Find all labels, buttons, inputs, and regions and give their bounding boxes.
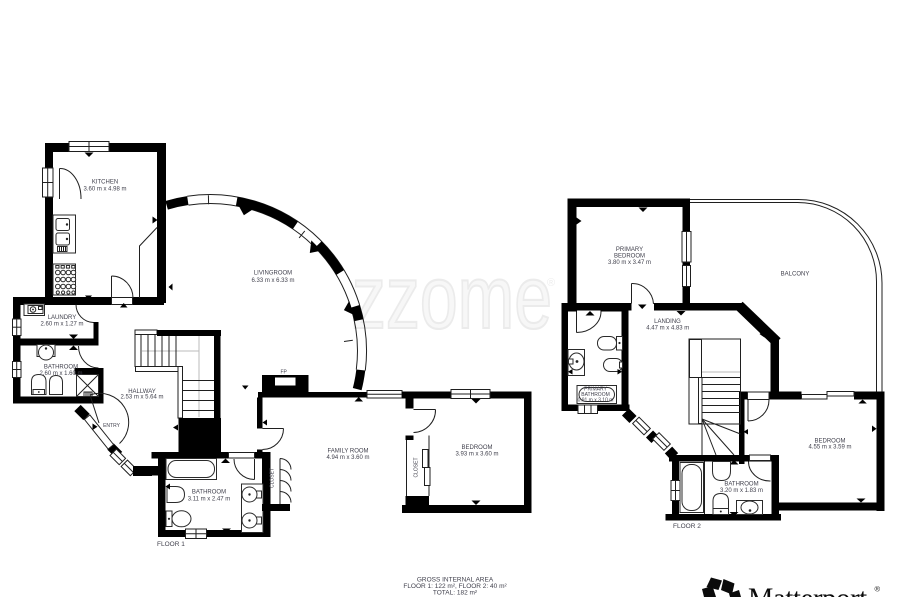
svg-text:4.94 m x 3.60 m: 4.94 m x 3.60 m — [326, 455, 369, 461]
svg-text:6.33 m x 6.33 m: 6.33 m x 6.33 m — [251, 278, 294, 284]
svg-text:2.60 m x 1.60 m: 2.60 m x 1.60 m — [39, 371, 82, 377]
svg-text:LANDING: LANDING — [654, 319, 681, 325]
svg-text:BEDROOM: BEDROOM — [614, 254, 645, 260]
svg-text:4.55 m x 3.59 m: 4.55 m x 3.59 m — [808, 445, 851, 451]
svg-text:FP: FP — [281, 370, 288, 376]
svg-text:2.60 m x 1.27 m: 2.60 m x 1.27 m — [40, 322, 83, 328]
svg-text:PRIMARY: PRIMARY — [616, 247, 643, 253]
svg-text:0.91 m x 3.10 m: 0.91 m x 3.10 m — [578, 398, 614, 404]
svg-text:BALCONY: BALCONY — [781, 272, 810, 278]
svg-text:3.60 m x 4.98 m: 3.60 m x 4.98 m — [83, 187, 126, 193]
svg-text:3.93 m x 3.60 m: 3.93 m x 3.60 m — [455, 452, 498, 458]
svg-text:CLOSET: CLOSET — [270, 468, 276, 488]
svg-text:KITCHEN: KITCHEN — [92, 180, 118, 186]
svg-text:FLOOR 2: FLOOR 2 — [673, 523, 701, 530]
svg-text:3.80 m x 3.47 m: 3.80 m x 3.47 m — [608, 260, 651, 266]
svg-text:®: ® — [875, 585, 881, 594]
svg-text:zzome: zzome — [352, 247, 552, 347]
svg-text:BATHROOM: BATHROOM — [44, 365, 78, 371]
svg-text:4.47 m x 4.83 m: 4.47 m x 4.83 m — [646, 326, 689, 332]
svg-text:3.11 m x 2.47 m: 3.11 m x 2.47 m — [188, 497, 231, 503]
svg-text:TOTAL: 182 m²: TOTAL: 182 m² — [433, 590, 478, 597]
svg-text:LAUNDRY: LAUNDRY — [48, 315, 77, 321]
svg-text:FLOOR 1: FLOOR 1 — [157, 541, 185, 548]
svg-text:®: ® — [547, 277, 555, 289]
svg-text:BATHROOM: BATHROOM — [724, 482, 758, 488]
svg-text:3.20 m x 1.83 m: 3.20 m x 1.83 m — [720, 488, 763, 494]
svg-text:BATHROOM: BATHROOM — [192, 490, 226, 496]
svg-text:FAMILY ROOM: FAMILY ROOM — [327, 449, 368, 455]
svg-text:LIVINGROOM: LIVINGROOM — [254, 271, 292, 277]
svg-text:CLOSET: CLOSET — [414, 457, 420, 477]
svg-text:BEDROOM: BEDROOM — [461, 445, 492, 451]
svg-text:Matterport: Matterport — [748, 584, 867, 597]
svg-text:ENTRY: ENTRY — [103, 423, 121, 429]
svg-text:2.53 m x 5.64 m: 2.53 m x 5.64 m — [120, 395, 163, 401]
